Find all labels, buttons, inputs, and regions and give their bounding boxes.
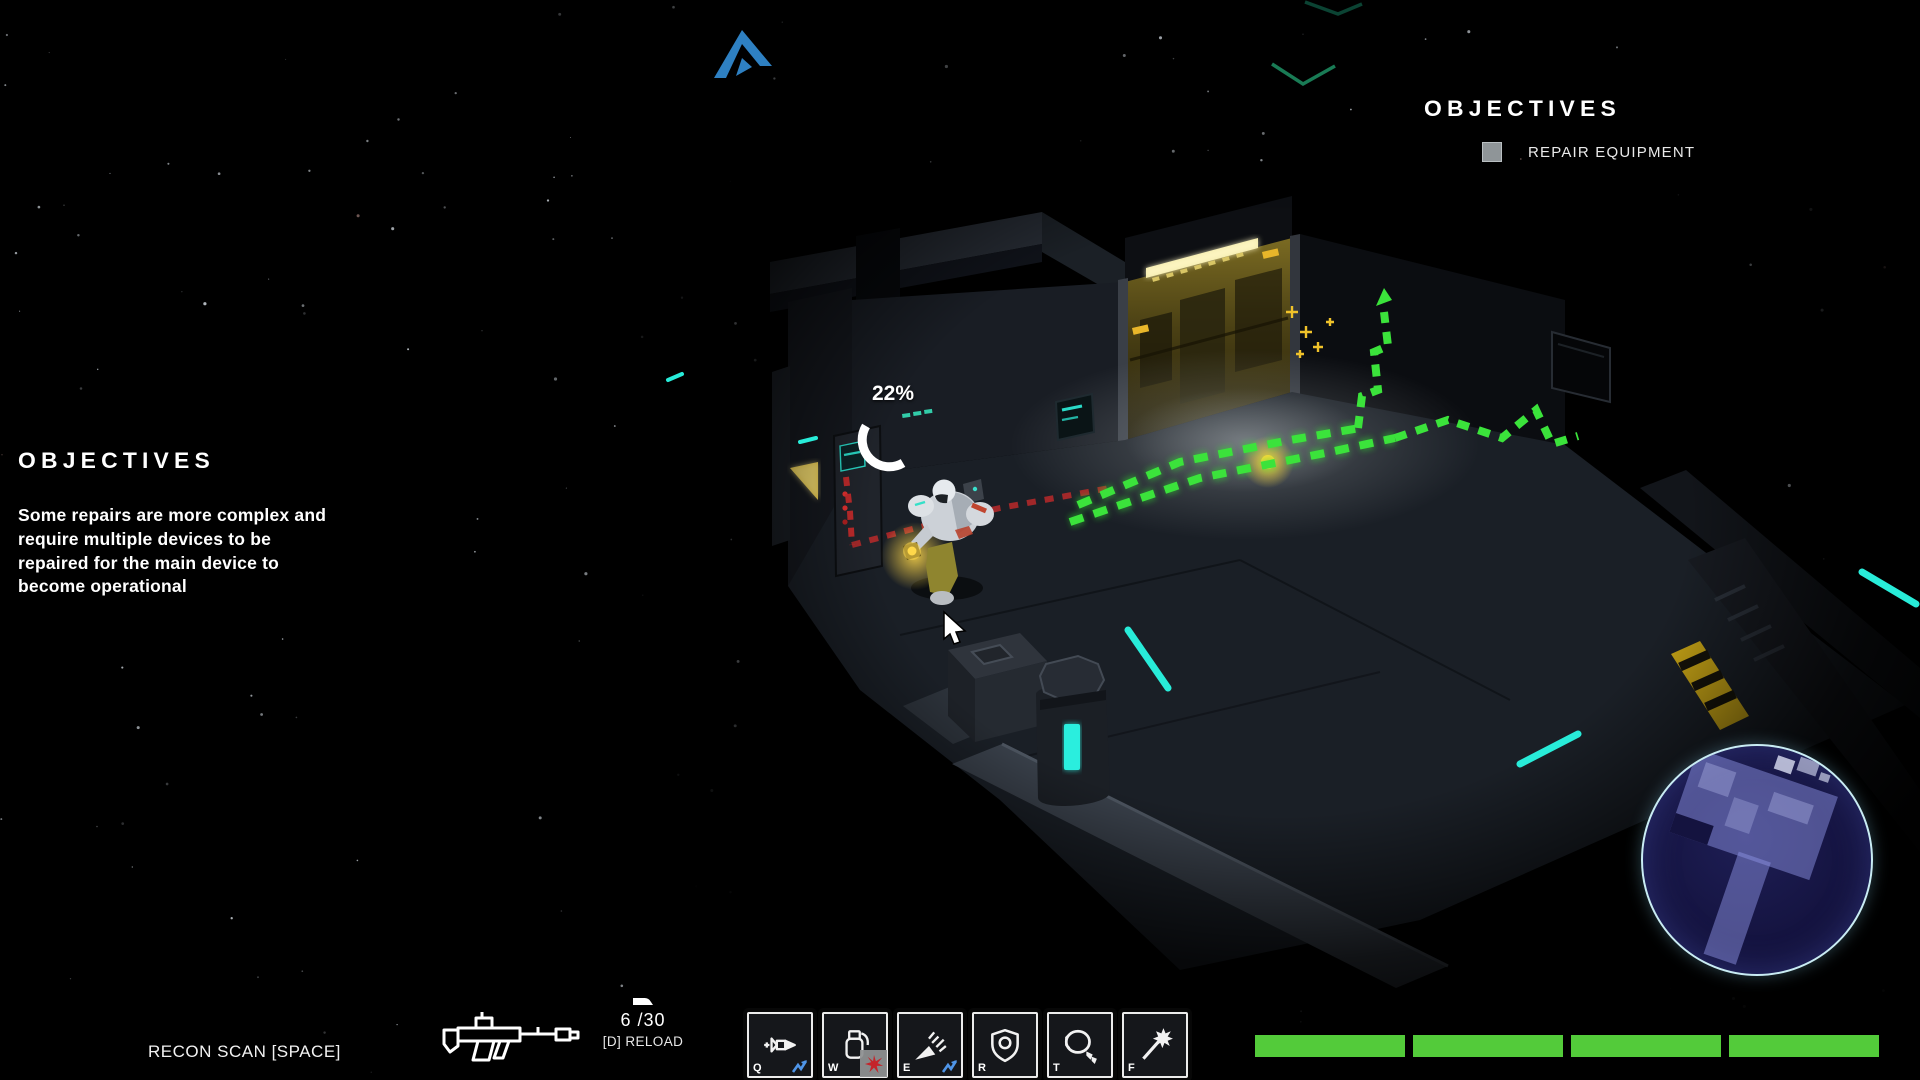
- objectives-title: OBJECTIVES: [1424, 96, 1902, 122]
- waypoint-arrow-icon: [714, 30, 772, 78]
- reload-hint: [D] RELOAD: [588, 1034, 698, 1049]
- objective-label: REPAIR EQUIPMENT: [1528, 144, 1695, 161]
- status-bar-segment: [1255, 1035, 1405, 1057]
- status-bar-segment: [1729, 1035, 1879, 1057]
- hotbar-slot-w[interactable]: W: [822, 1012, 888, 1078]
- objectives-title: OBJECTIVES: [18, 448, 455, 474]
- hotkey-label: Q: [753, 1062, 762, 1074]
- energy-zigzag-icon: [791, 1059, 809, 1074]
- status-bar-segment: [1413, 1035, 1563, 1057]
- shield-icon: [986, 1026, 1024, 1064]
- hotbar-slot-q[interactable]: Q: [747, 1012, 813, 1078]
- damage-patch: [860, 1050, 887, 1077]
- objectives-panel-left: OBJECTIVES Some repairs are more complex…: [18, 448, 438, 599]
- hotbar-slot-r[interactable]: R: [972, 1012, 1038, 1078]
- hotbar-slot-t[interactable]: T: [1047, 1012, 1113, 1078]
- hotkey-label: F: [1128, 1062, 1135, 1074]
- ammo-counter: 6 /30 [D] RELOAD: [588, 996, 698, 1049]
- ammo-magazine-icon: [632, 996, 654, 1007]
- checkbox-icon: [1482, 142, 1502, 162]
- objectives-panel-right: OBJECTIVES REPAIR EQUIPMENT: [1424, 96, 1884, 162]
- orbital-drone-icon: [1061, 1026, 1099, 1064]
- hull-light-chevrons: [1272, 2, 1362, 84]
- repair-progress-value: 22%: [872, 382, 914, 406]
- rifle-icon: [438, 1008, 588, 1072]
- hotkey-label: W: [828, 1062, 838, 1074]
- hotbar-slot-f[interactable]: F: [1122, 1012, 1188, 1078]
- objective-item: REPAIR EQUIPMENT: [1482, 142, 1884, 162]
- status-bar-segment: [1571, 1035, 1721, 1057]
- red-burst-icon: [864, 1054, 884, 1074]
- minimap: [1641, 744, 1873, 976]
- hotkey-label: E: [903, 1062, 910, 1074]
- minimap-room-shape: [1643, 746, 1846, 974]
- hotkey-label: T: [1053, 1062, 1060, 1074]
- energy-zigzag-icon: [941, 1059, 959, 1074]
- hotbar-slot-e[interactable]: E: [897, 1012, 963, 1078]
- recon-scan-hint: RECON SCAN [SPACE]: [148, 1042, 341, 1062]
- repair-wand-icon: [1136, 1026, 1174, 1064]
- ammo-count: 6 /30: [588, 1010, 698, 1031]
- objective-description: Some repairs are more complex and requir…: [18, 504, 438, 599]
- game-screen: OBJECTIVES REPAIR EQUIPMENT OBJECTIVES S…: [0, 0, 1920, 1080]
- hotkey-label: R: [978, 1062, 986, 1074]
